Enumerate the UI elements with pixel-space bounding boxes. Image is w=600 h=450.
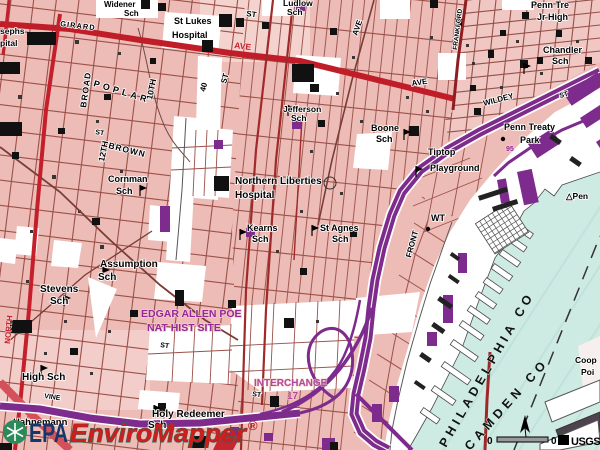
svg-text:EnviroMapper: EnviroMapper xyxy=(70,418,248,448)
svg-text:Hospital: Hospital xyxy=(235,190,275,201)
svg-text:ST: ST xyxy=(160,342,171,350)
svg-text:Coop: Coop xyxy=(575,355,597,365)
svg-text:Playground: Playground xyxy=(430,163,480,173)
svg-text:Sch: Sch xyxy=(376,134,393,144)
svg-text:Poi: Poi xyxy=(581,367,594,377)
svg-text:Cornman: Cornman xyxy=(108,174,148,184)
svg-text:EDGAR ALLEN POE: EDGAR ALLEN POE xyxy=(141,308,242,320)
svg-text:Hospital: Hospital xyxy=(172,30,208,40)
svg-text:pital: pital xyxy=(0,38,17,48)
svg-text:Widener: Widener xyxy=(104,0,136,9)
svg-text:Assumption: Assumption xyxy=(100,259,158,270)
svg-text:Sch: Sch xyxy=(50,296,68,307)
svg-text:Northern Liberties: Northern Liberties xyxy=(235,176,322,187)
svg-text:sephs: sephs xyxy=(0,26,25,36)
svg-text:NAT HIST SITE: NAT HIST SITE xyxy=(147,322,221,334)
svg-text:Jr High: Jr High xyxy=(537,12,568,22)
svg-text:USGS: USGS xyxy=(571,436,600,448)
svg-text:Sch: Sch xyxy=(332,234,349,244)
svg-text:Kearns: Kearns xyxy=(247,223,278,233)
svg-text:△Pen: △Pen xyxy=(565,191,588,201)
svg-text:Sch: Sch xyxy=(552,56,569,66)
svg-text:Sch: Sch xyxy=(291,113,307,123)
svg-text:ST: ST xyxy=(252,391,263,399)
svg-text:St Lukes: St Lukes xyxy=(174,16,212,26)
svg-text:0: 0 xyxy=(487,436,493,447)
svg-text:Park: Park xyxy=(520,135,541,145)
svg-text:Sch: Sch xyxy=(252,234,269,244)
svg-text:Stevens: Stevens xyxy=(40,284,79,295)
svg-text:St Agnes: St Agnes xyxy=(320,223,359,233)
svg-text:Tiptop: Tiptop xyxy=(428,147,456,157)
svg-text:EPA: EPA xyxy=(29,418,68,448)
svg-text:WT: WT xyxy=(431,213,445,223)
svg-text:Sch: Sch xyxy=(287,7,303,17)
svg-text:Penn Treaty: Penn Treaty xyxy=(504,122,555,132)
svg-text:17: 17 xyxy=(287,391,299,402)
svg-text:Sch: Sch xyxy=(116,186,133,196)
svg-text:High Sch: High Sch xyxy=(22,372,65,383)
svg-text:0: 0 xyxy=(551,436,557,447)
svg-text:Sch: Sch xyxy=(98,272,116,283)
svg-text:INTERCHANGE: INTERCHANGE xyxy=(254,378,328,389)
svg-text:Penn Tre: Penn Tre xyxy=(531,0,569,10)
svg-text:Chandler: Chandler xyxy=(543,45,583,55)
svg-text:Sch: Sch xyxy=(124,9,139,18)
svg-text:®: ® xyxy=(248,418,258,433)
svg-text:AVE: AVE xyxy=(234,40,252,52)
svg-text:95: 95 xyxy=(506,146,514,153)
svg-text:ST: ST xyxy=(246,9,257,19)
svg-text:Boone: Boone xyxy=(371,123,399,133)
